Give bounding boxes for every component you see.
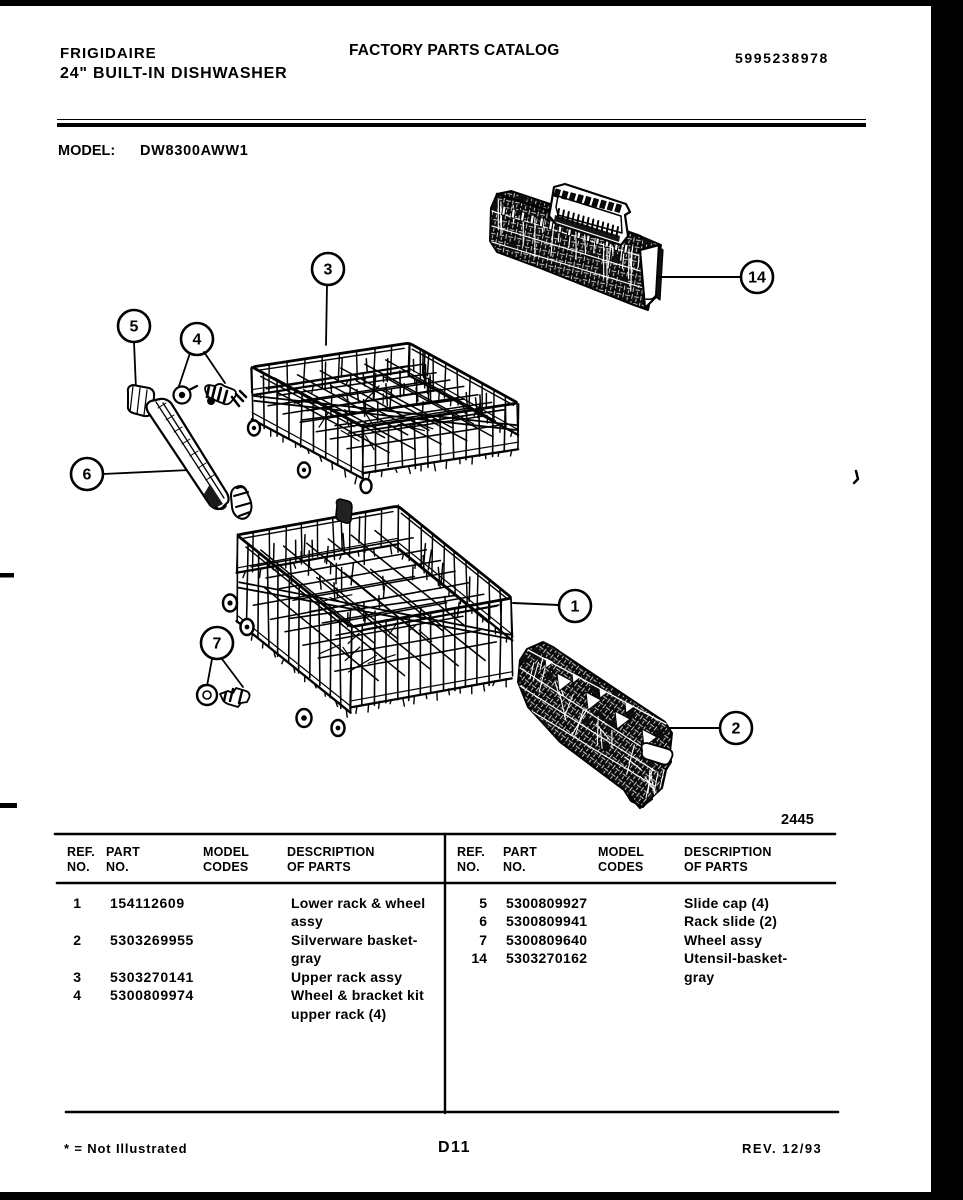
svg-text:5: 5 [130, 319, 139, 336]
svg-text:4: 4 [193, 332, 202, 349]
svg-text:7: 7 [213, 636, 222, 653]
svg-text:1: 1 [571, 599, 580, 616]
svg-text:6: 6 [83, 467, 92, 484]
svg-text:3: 3 [324, 262, 333, 279]
svg-text:14: 14 [748, 270, 766, 287]
svg-text:2: 2 [732, 721, 741, 738]
